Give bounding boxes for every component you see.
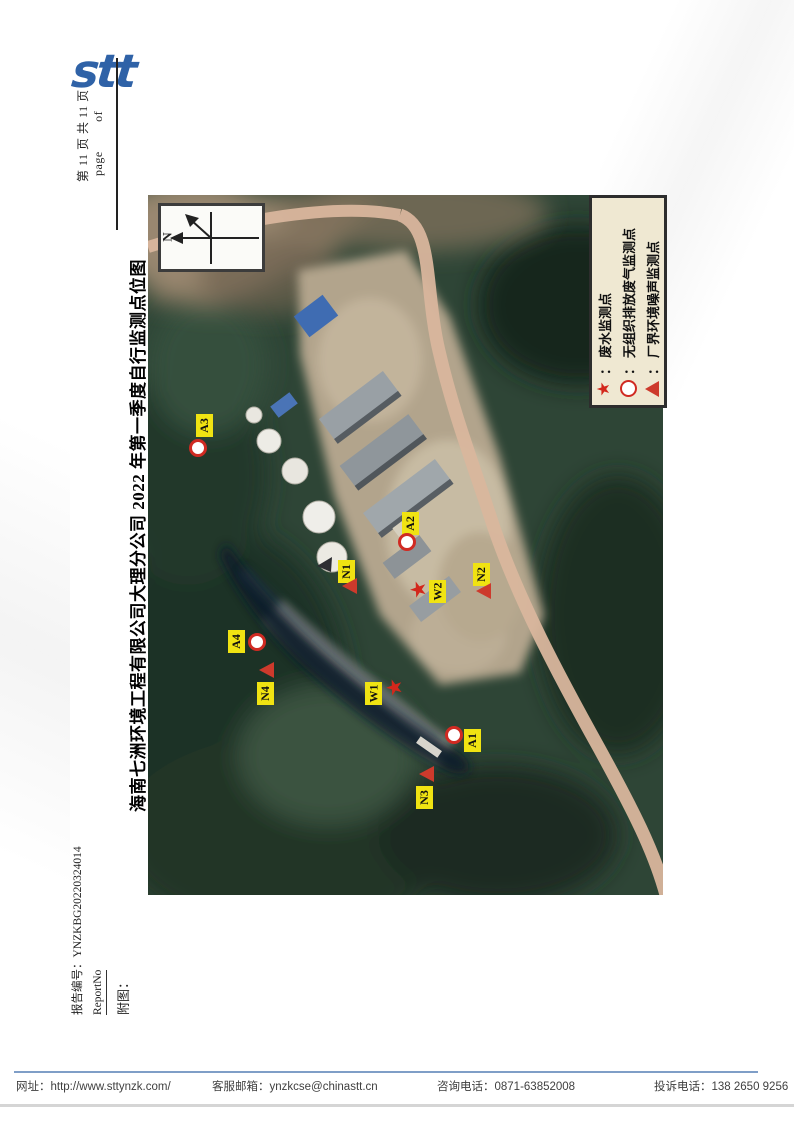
marker-a4: A4	[228, 630, 245, 653]
footer-blue-line	[14, 1071, 758, 1073]
phone-value: 0871-63852008	[495, 1081, 576, 1093]
triangle-icon	[645, 381, 659, 397]
phone-label: 咨询电话：	[437, 1081, 495, 1093]
legend-item-fugitive-gas: ： 无组织排放废气监测点	[616, 198, 640, 405]
legend-item-boundary-noise: ： 厂界环境噪声监测点	[640, 198, 664, 405]
page-number-block: 第 11 页 共 11 页 page of	[74, 70, 118, 182]
triangle-icon	[476, 583, 491, 599]
star-icon: ★	[596, 381, 613, 396]
footer-complaint-phone: 投诉电话：138 2650 9256	[654, 1078, 788, 1094]
page-number-cn: 第 11 页 共 11 页	[74, 70, 91, 182]
complaint-label: 投诉电话：	[654, 1081, 712, 1093]
circle-icon	[445, 726, 463, 744]
scanned-report-page: stt 第 11 页 共 11 页 page of 海南七洲环境工程有限公司大理…	[0, 0, 794, 1123]
marker-n3: N3	[416, 786, 433, 809]
footer-email: 客服邮箱：ynzkcse@chinastt.cn	[212, 1078, 378, 1094]
legend-label: 无组织排放废气监测点	[619, 228, 638, 358]
legend-label: 厂界环境噪声监测点	[643, 241, 662, 358]
legend-separator: ：	[643, 362, 662, 375]
page-number-divider	[116, 58, 118, 230]
report-no-value: YNZKBG20220324014	[72, 846, 84, 957]
email-label: 客服邮箱：	[212, 1081, 270, 1093]
attachment-label: 附图：	[114, 835, 134, 1015]
complaint-value: 138 2650 9256	[712, 1081, 789, 1093]
marker-a3: A3	[196, 414, 213, 437]
document-title: 海南七洲环境工程有限公司大理分公司 2022 年第一季度自行监测点位图	[124, 272, 150, 812]
report-no-label: 报告编号：	[72, 958, 84, 1016]
circle-icon	[189, 439, 207, 457]
email-value: ynzkcse@chinastt.cn	[270, 1081, 378, 1093]
website-value: http://www.sttynzk.com/	[51, 1081, 171, 1093]
marker-w2: W2	[429, 580, 446, 603]
compass-label: N	[160, 232, 176, 241]
legend-item-wastewater: ★ ： 废水监测点	[592, 198, 616, 405]
footer-website: 网址：http://www.sttynzk.com/	[16, 1078, 171, 1094]
footer-phone: 咨询电话：0871-63852008	[437, 1078, 575, 1094]
compass-box: N	[158, 203, 265, 272]
of-word: of	[91, 111, 105, 122]
triangle-icon	[342, 578, 357, 594]
triangle-icon	[419, 766, 434, 782]
marker-a2: A2	[402, 512, 419, 535]
report-no-en: ReportNo	[90, 970, 107, 1015]
marker-n4: N4	[257, 682, 274, 705]
page-word: page	[91, 151, 105, 176]
legend-separator: ：	[595, 362, 614, 375]
report-info-block: 报告编号：YNZKBG20220324014 ReportNo 附图：	[68, 835, 138, 1015]
website-label: 网址：	[16, 1081, 51, 1093]
legend-label: 废水监测点	[595, 293, 614, 358]
circle-icon	[398, 533, 416, 551]
footer-gray-line	[0, 1104, 794, 1107]
circle-icon	[248, 633, 266, 651]
scan-artifact	[0, 300, 70, 1000]
marker-w1: W1	[365, 682, 382, 705]
circle-icon	[620, 381, 637, 398]
north-arrow-icon	[161, 206, 262, 269]
triangle-icon	[259, 662, 274, 678]
document-title-text: 海南七洲环境工程有限公司大理分公司 2022 年第一季度自行监测点位图	[124, 272, 150, 812]
legend-separator: ：	[619, 362, 638, 375]
legend-box: ★ ： 废水监测点 ： 无组织排放废气监测点 ： 厂界环境噪声监测点	[589, 195, 667, 408]
marker-a1: A1	[464, 729, 481, 752]
